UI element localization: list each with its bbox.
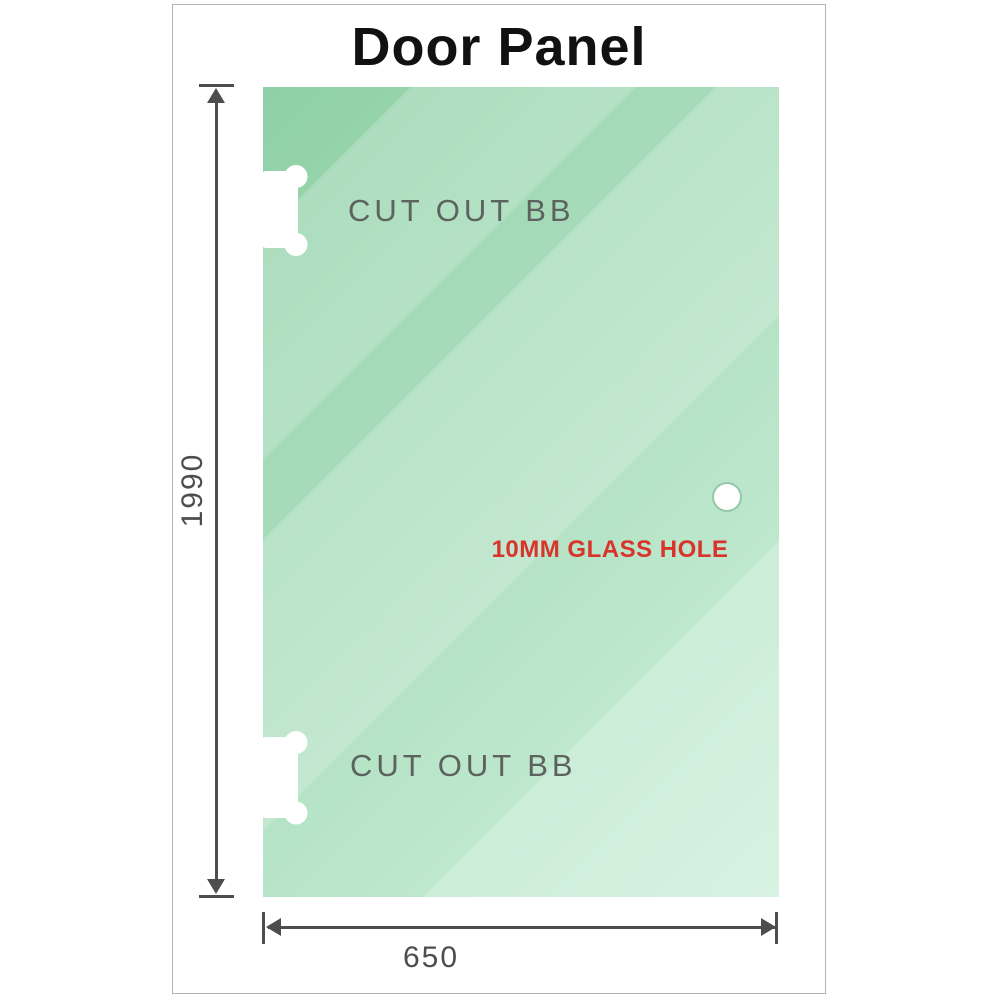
hinge-cutout-bottom (261, 731, 311, 827)
cutout-bottom-label: CUT OUT BB (350, 748, 577, 784)
cutout-top-label: CUT OUT BB (348, 193, 575, 229)
page-title: Door Panel (172, 18, 826, 77)
height-dim-cap-bottom (199, 895, 234, 898)
width-dim-label: 650 (403, 941, 459, 975)
glass-hole-label: 10MM GLASS HOLE (492, 536, 729, 564)
width-dim-cap-left (262, 912, 265, 944)
glass-hole (714, 484, 740, 510)
width-dim-line (268, 926, 776, 929)
arrow-left-icon (266, 918, 281, 936)
height-dim-label: 1990 (176, 453, 210, 528)
arrow-right-icon (761, 918, 776, 936)
hinge-cutout-top (261, 165, 311, 259)
arrow-up-icon (207, 88, 225, 103)
diagram-canvas: Door Panel CUT OUT BB CUT OUT BB 10MM GL… (0, 0, 1000, 1000)
height-dim-line (215, 98, 218, 884)
height-dim-cap-top (199, 84, 234, 87)
arrow-down-icon (207, 879, 225, 894)
